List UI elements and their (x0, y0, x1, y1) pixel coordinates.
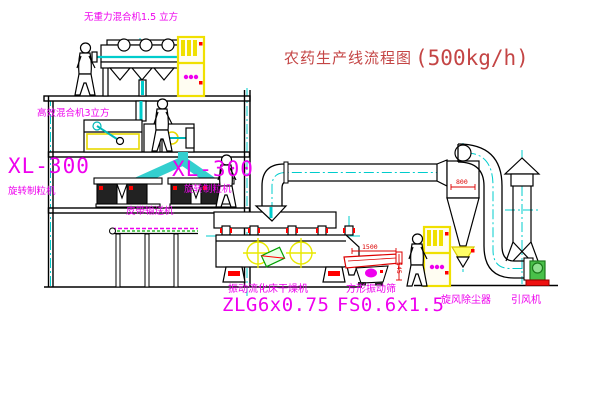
label-mid-mixer: 高效混合机3立方 (37, 109, 110, 119)
page-title: 农药生产线流程图 (500kg/h) (284, 46, 529, 70)
control-cabinet-top-icon (178, 37, 204, 96)
label-granulator-right-name: 旋转制粒机 (184, 185, 232, 195)
label-fan: 引风机 (511, 296, 541, 306)
label-gravity-free-mixer: 无重力混合机1.5 立方 (84, 13, 178, 23)
title-text: 农药生产线流程图 (284, 47, 412, 70)
control-cabinet-right-icon (424, 227, 450, 286)
dim-screen-height: 545 (396, 262, 403, 274)
label-granulator-right-model: XL-300 (172, 159, 254, 180)
belt-conveyor (110, 228, 199, 287)
induced-draft-fan (524, 258, 549, 286)
cyclone-discharge (452, 247, 474, 257)
label-dryer-model: ZLG6x0.75 (222, 296, 329, 315)
dim-cyclone-width: 800 (456, 179, 468, 186)
label-granulator-left-model: XL-300 (8, 156, 90, 177)
screen-motor-icon (365, 269, 377, 278)
label-belt-conveyor: 皮带输送机 (126, 207, 174, 217)
title-capacity: (500kg/h) (415, 46, 529, 70)
label-screen-model: FS0.6x1.5 (337, 296, 444, 315)
worker-figure-top-icon (75, 43, 95, 95)
duct-dryer-to-cyclone (262, 162, 437, 206)
flow-diagram-canvas: 农药生产线流程图 (500kg/h) 无重力混合机1.5 立方 高效混合机3立方… (0, 0, 600, 403)
fluid-bed-dryer (214, 206, 359, 282)
granulator-left (94, 178, 162, 207)
label-granulator-left-name: 旋转制粒机 (8, 187, 56, 197)
label-cyclone: 旋风除尘器 (441, 296, 491, 306)
dim-screen-length: 1500 (362, 244, 378, 251)
floor-slab-top (44, 96, 250, 101)
